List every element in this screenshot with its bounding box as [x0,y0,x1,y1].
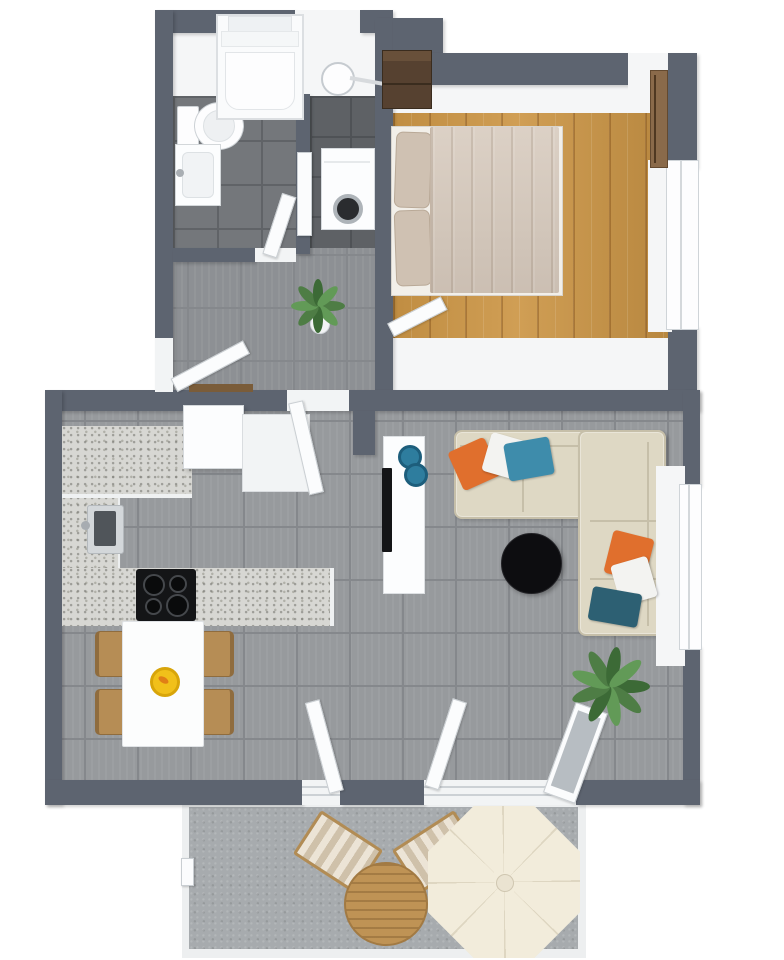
decor-bowl-2 [404,463,428,487]
coffee-table [501,533,562,594]
wall-bottom-left [45,780,302,805]
entry-door-opening [155,338,173,392]
wall-main-left [45,390,62,805]
wall-art-inner-line [654,75,656,163]
cooktop [136,569,196,621]
wall-main-top [45,390,700,411]
wardrobe-gap-line [383,83,431,85]
wall-corridor-stub [353,411,375,455]
washer-drum [333,194,363,224]
kitchen-sink [87,505,124,554]
sink-vanity [175,144,221,206]
bedroom-wall-art [650,70,668,168]
wall-top-white-niche [295,10,368,33]
refrigerator [183,405,244,469]
living-window [679,484,702,650]
banana [157,675,170,686]
wall-left-upper-block [155,10,173,392]
shower-tray [225,52,295,110]
vanity-faucet [176,169,184,177]
bedroom-south-wall-face [386,338,682,392]
wall-bedroom-right-lower [668,326,697,392]
dining-chair-4 [200,689,234,735]
vanity-basin [182,152,214,198]
wall-main-right-upper [683,390,700,486]
wall-bedroom-right-upper [668,53,697,168]
wall-bottom-right [576,780,700,805]
fruit-bowl [150,667,180,697]
wardrobe-top-face [383,51,431,61]
shower-step-2 [221,31,299,47]
wall-bottom-middle [340,780,424,805]
burner-2 [169,575,187,593]
burner-4 [166,594,189,617]
patio-round-table [344,862,428,946]
sink-faucet [81,521,90,530]
counter-bottom-band [62,568,334,626]
living-room-plant [572,648,648,724]
dining-chair-3 [200,631,234,677]
wardrobe [382,50,432,109]
wall-bathroom-south [173,248,255,262]
counter-top-band [62,426,192,498]
floor-plan-canvas [0,0,784,960]
burner-3 [145,598,162,615]
doormat [189,384,253,392]
laundry-door-leaf [297,152,312,236]
washing-machine [321,148,375,230]
bed-pillow-bottom [394,209,433,286]
patio-side-gate-handle [181,858,194,886]
umbrella-hub [496,874,514,892]
washer-control-line [324,161,370,163]
hallway-potted-plant [288,276,348,336]
bedroom-window [666,160,699,330]
sofa-pillow-teal [503,436,555,481]
bed-blanket [430,127,559,293]
burner-1 [143,574,165,596]
sink-basin [94,511,116,546]
bed-pillow-top [394,131,433,208]
walk-in-shower [216,14,304,120]
tv [382,468,392,552]
